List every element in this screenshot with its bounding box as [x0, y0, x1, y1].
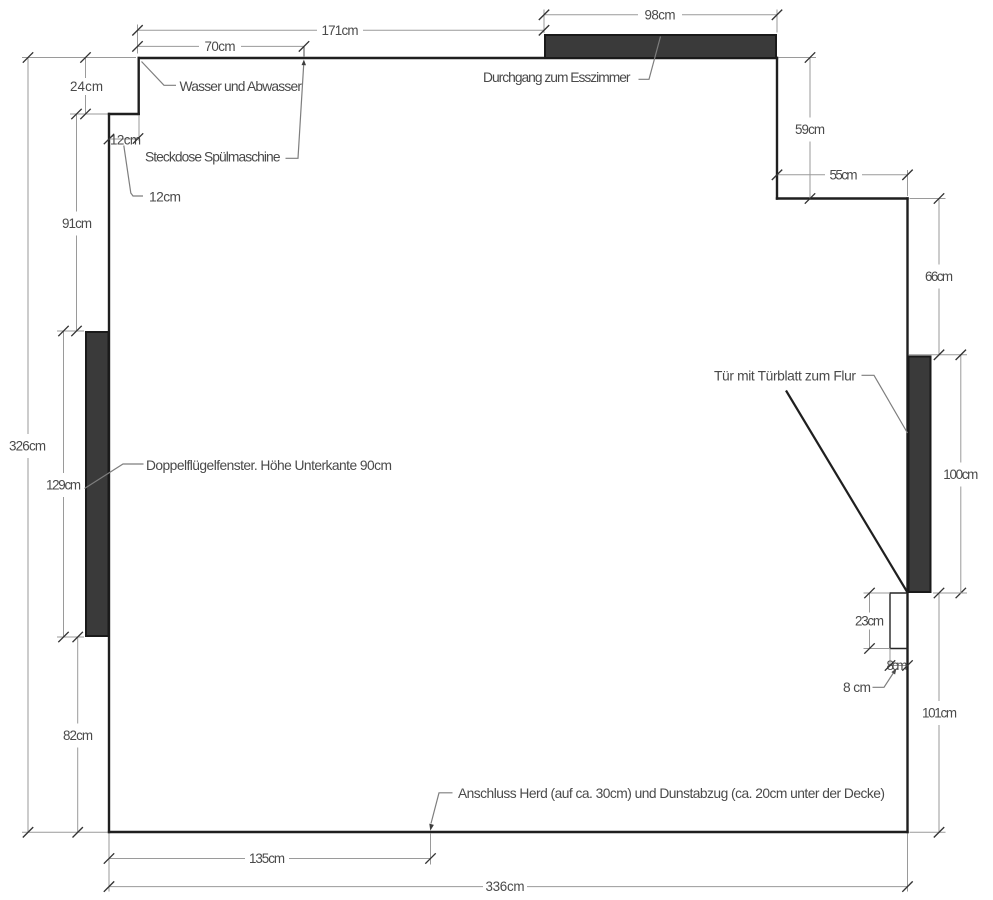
- svg-text:24cm: 24cm: [70, 79, 103, 94]
- svg-text:59cm: 59cm: [795, 122, 825, 137]
- svg-text:Doppelflügelfenster. Höhe Unte: Doppelflügelfenster. Höhe Unterkante 90c…: [146, 458, 392, 473]
- svg-text:101cm: 101cm: [922, 706, 957, 721]
- svg-text:82cm: 82cm: [63, 728, 93, 743]
- svg-text:91cm: 91cm: [62, 216, 92, 231]
- svg-text:55cm: 55cm: [830, 167, 858, 182]
- svg-text:98cm: 98cm: [645, 7, 676, 22]
- svg-text:8 cm: 8 cm: [843, 680, 871, 695]
- svg-text:Anschluss Herd (auf ca. 30cm): Anschluss Herd (auf ca. 30cm) und Dunsta…: [458, 786, 885, 801]
- svg-text:66cm: 66cm: [925, 269, 953, 284]
- svg-text:100cm: 100cm: [943, 467, 978, 482]
- svg-text:129cm: 129cm: [46, 478, 81, 493]
- svg-text:Wasser und Abwasser: Wasser und Abwasser: [180, 79, 303, 94]
- svg-text:135cm: 135cm: [249, 851, 285, 866]
- svg-text:Tür mit Türblatt zum Flur: Tür mit Türblatt zum Flur: [714, 369, 856, 384]
- svg-text:326cm: 326cm: [9, 439, 46, 454]
- svg-text:Durchgang zum Esszimmer: Durchgang zum Esszimmer: [483, 70, 631, 85]
- svg-text:171cm: 171cm: [322, 23, 359, 38]
- svg-text:336cm: 336cm: [486, 879, 525, 894]
- svg-text:Steckdose Spülmaschine: Steckdose Spülmaschine: [145, 150, 281, 165]
- svg-text:12cm: 12cm: [149, 189, 181, 204]
- svg-text:23cm: 23cm: [855, 614, 884, 629]
- svg-text:70cm: 70cm: [205, 39, 236, 54]
